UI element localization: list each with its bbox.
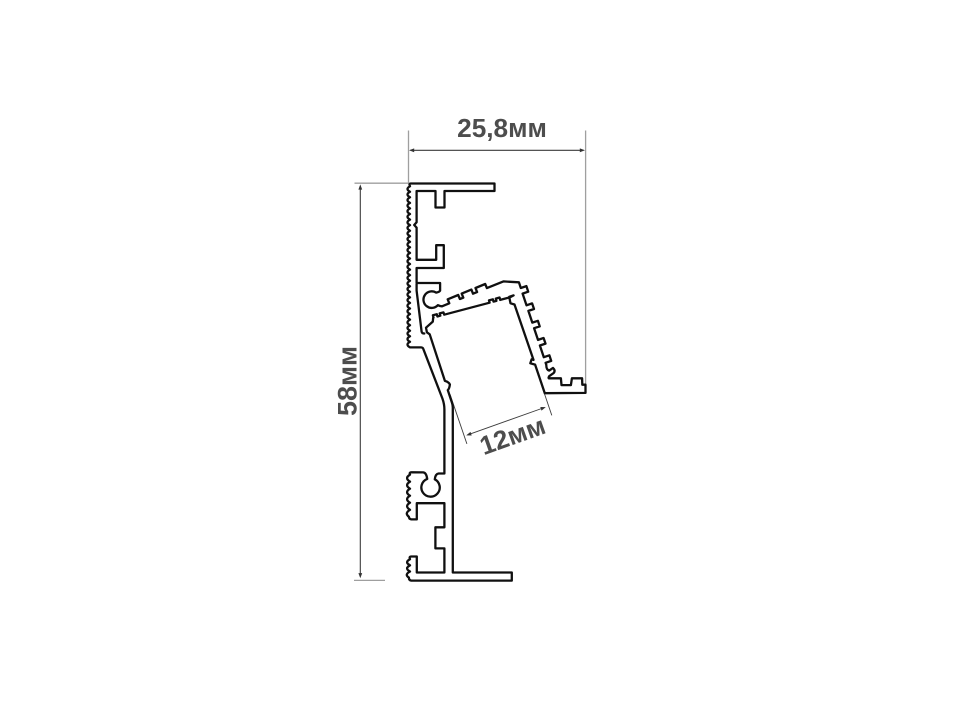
svg-text:58мм: 58мм [333,346,363,416]
svg-text:25,8мм: 25,8мм [457,113,547,143]
